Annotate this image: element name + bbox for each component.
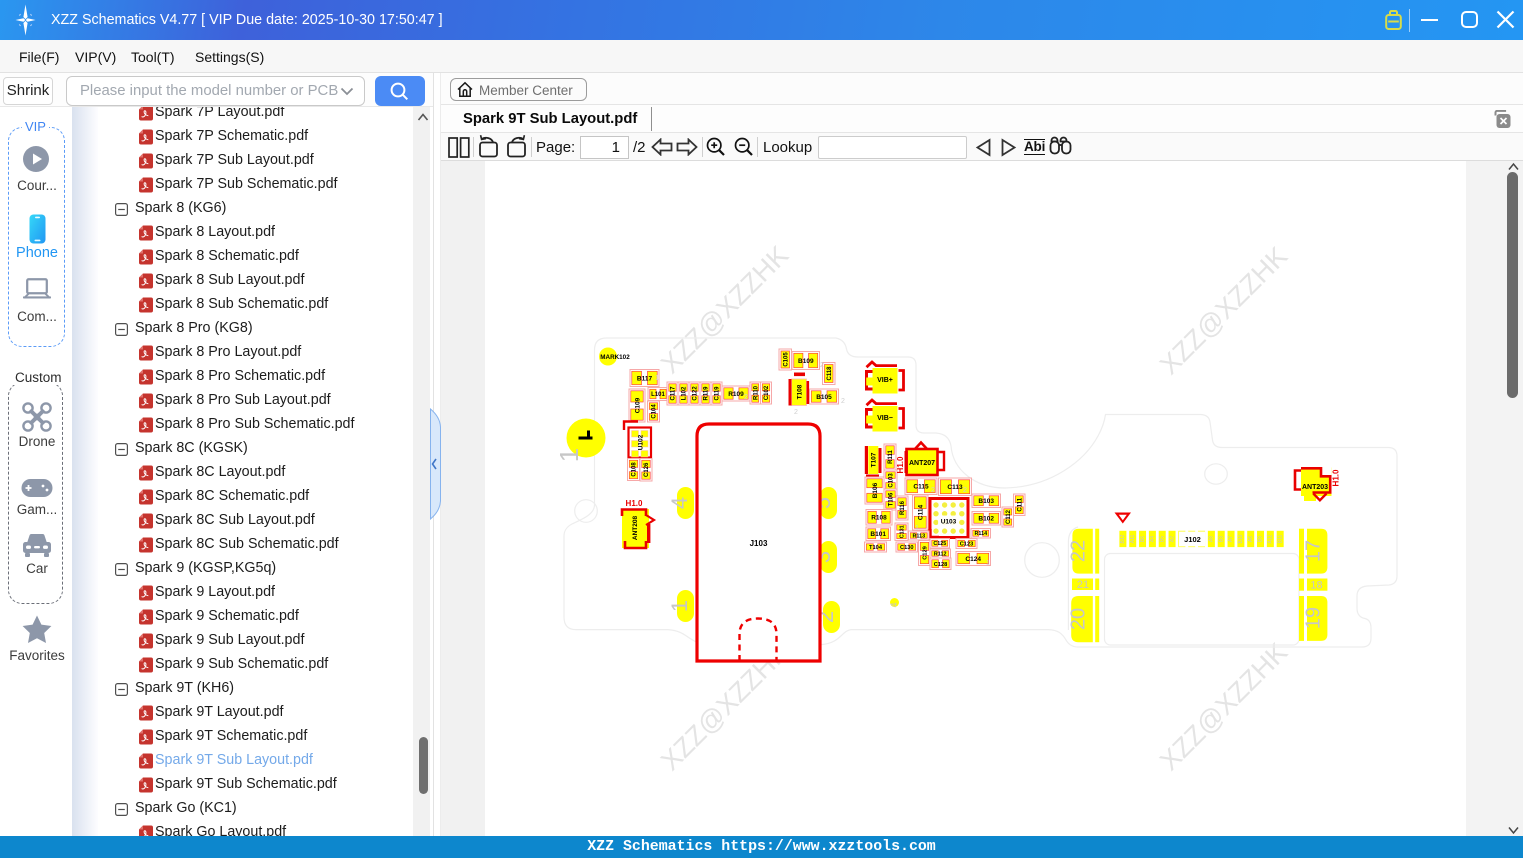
svg-text:1: 1 bbox=[915, 525, 919, 532]
svg-text:C113: C113 bbox=[947, 484, 963, 491]
svg-text:J102: J102 bbox=[1184, 535, 1201, 544]
svg-text:C129: C129 bbox=[923, 546, 929, 560]
svg-text:B109: B109 bbox=[798, 358, 814, 365]
svg-text:18: 18 bbox=[1310, 580, 1322, 592]
svg-text:ANT208: ANT208 bbox=[632, 516, 639, 541]
svg-text:R113: R113 bbox=[913, 533, 926, 539]
svg-text:B106: B106 bbox=[872, 482, 879, 498]
svg-text:H1.0: H1.0 bbox=[896, 456, 905, 473]
svg-text:17: 17 bbox=[1303, 540, 1325, 562]
svg-text:C125: C125 bbox=[933, 541, 946, 547]
svg-text:ANT207: ANT207 bbox=[909, 460, 935, 467]
svg-text:1: 1 bbox=[655, 375, 659, 382]
svg-text:20: 20 bbox=[1068, 608, 1090, 630]
svg-text:C118: C118 bbox=[827, 366, 833, 381]
svg-text:C122: C122 bbox=[693, 386, 699, 401]
svg-text:2: 2 bbox=[794, 409, 798, 416]
svg-text:A2: A2 bbox=[1169, 536, 1175, 542]
svg-text:B10: B10 bbox=[1238, 534, 1244, 543]
svg-text:R119: R119 bbox=[704, 386, 710, 401]
svg-text:2: 2 bbox=[931, 487, 935, 494]
svg-text:MARK102: MARK102 bbox=[600, 354, 630, 361]
svg-text:1: 1 bbox=[986, 560, 990, 567]
svg-text:R112: R112 bbox=[934, 551, 947, 557]
svg-text:C124: C124 bbox=[965, 556, 981, 563]
svg-text:R116: R116 bbox=[900, 500, 906, 515]
svg-text:B102: B102 bbox=[978, 516, 994, 523]
svg-text:B103: B103 bbox=[978, 498, 994, 505]
svg-text:C131: C131 bbox=[899, 525, 905, 538]
svg-text:T104: T104 bbox=[869, 545, 883, 551]
svg-text:XZZ@XZZHK: XZZ@XZZHK bbox=[1154, 241, 1293, 380]
svg-text:XZZ@XZZHK: XZZ@XZZHK bbox=[1154, 637, 1293, 776]
svg-text:19: 19 bbox=[1303, 607, 1325, 629]
svg-text:A4: A4 bbox=[1150, 536, 1156, 542]
svg-text:ANT203: ANT203 bbox=[1302, 484, 1328, 491]
svg-text:B117: B117 bbox=[637, 375, 653, 382]
svg-text:VIB−: VIB− bbox=[877, 415, 893, 422]
svg-text:R109: R109 bbox=[728, 391, 744, 398]
svg-text:H1.0: H1.0 bbox=[1332, 469, 1341, 486]
svg-text:C104: C104 bbox=[652, 404, 658, 419]
svg-text:A6: A6 bbox=[1248, 536, 1254, 542]
svg-text:B12: B12 bbox=[1120, 534, 1126, 543]
svg-text:R114: R114 bbox=[975, 531, 988, 537]
svg-text:1: 1 bbox=[667, 600, 692, 612]
svg-text:C115: C115 bbox=[913, 484, 929, 491]
svg-text:4: 4 bbox=[889, 602, 899, 607]
svg-text:C108: C108 bbox=[632, 462, 638, 477]
svg-text:B3: B3 bbox=[1218, 536, 1224, 542]
svg-text:2: 2 bbox=[963, 487, 967, 494]
svg-text:H1.0: H1.0 bbox=[626, 499, 643, 508]
svg-text:2: 2 bbox=[841, 398, 845, 405]
svg-text:A12: A12 bbox=[1268, 534, 1274, 543]
svg-text:R108: R108 bbox=[871, 515, 887, 522]
svg-text:T106: T106 bbox=[889, 492, 895, 506]
svg-text:2: 2 bbox=[820, 362, 824, 369]
svg-text:VIB+: VIB+ bbox=[877, 377, 893, 384]
svg-text:C130: C130 bbox=[900, 545, 914, 551]
svg-text:U103: U103 bbox=[941, 519, 957, 526]
svg-text:4: 4 bbox=[667, 497, 692, 509]
svg-text:21: 21 bbox=[1077, 579, 1089, 591]
svg-text:C111: C111 bbox=[1017, 497, 1023, 511]
svg-text:C128: C128 bbox=[934, 562, 948, 568]
svg-text:C103: C103 bbox=[889, 473, 895, 488]
svg-text:T108: T108 bbox=[797, 384, 804, 399]
svg-text:B6: B6 bbox=[1140, 536, 1146, 542]
svg-text:B105: B105 bbox=[816, 394, 832, 401]
svg-text:C126: C126 bbox=[644, 462, 650, 477]
svg-text:C114: C114 bbox=[918, 505, 925, 521]
svg-text:U102: U102 bbox=[637, 434, 644, 450]
svg-text:C123: C123 bbox=[960, 542, 974, 548]
svg-text:R110: R110 bbox=[753, 385, 759, 400]
svg-text:C109: C109 bbox=[634, 397, 641, 413]
svg-text:A8: A8 bbox=[1209, 536, 1215, 542]
svg-text:C119: C119 bbox=[715, 386, 721, 401]
svg-text:1: 1 bbox=[554, 448, 584, 462]
svg-text:C105: C105 bbox=[783, 352, 789, 367]
svg-text:B9: B9 bbox=[1258, 536, 1264, 542]
svg-text:B5: B5 bbox=[1159, 536, 1165, 542]
svg-text:A11: A11 bbox=[1130, 535, 1136, 544]
svg-text:L102: L102 bbox=[682, 386, 688, 400]
svg-text:XZZ@XZZHK: XZZ@XZZHK bbox=[655, 240, 794, 379]
svg-text:R111: R111 bbox=[888, 449, 894, 463]
svg-text:B11: B11 bbox=[1277, 535, 1283, 544]
svg-text:C102: C102 bbox=[764, 385, 770, 400]
svg-text:B101: B101 bbox=[870, 531, 886, 538]
svg-text:A7: A7 bbox=[1228, 536, 1234, 542]
svg-text:C112: C112 bbox=[1006, 509, 1012, 524]
svg-text:22: 22 bbox=[1068, 540, 1090, 562]
svg-text:2: 2 bbox=[744, 394, 748, 401]
svg-text:C117: C117 bbox=[671, 386, 677, 401]
svg-text:L101: L101 bbox=[651, 392, 665, 398]
svg-text:T107: T107 bbox=[871, 452, 878, 467]
svg-text:J103: J103 bbox=[750, 539, 768, 548]
